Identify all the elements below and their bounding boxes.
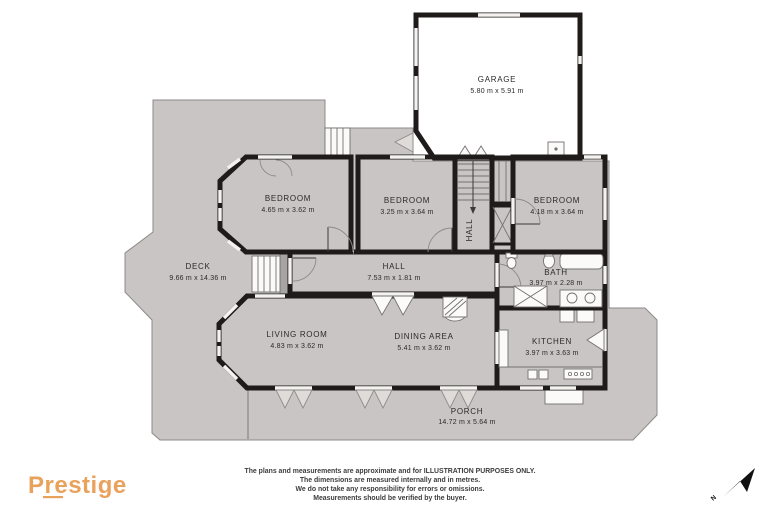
hall-label: HALL: [383, 262, 406, 271]
bedroom3-dims: 4.18 m x 3.64 m: [530, 209, 583, 216]
utility-box-icon: [548, 142, 564, 156]
footer: Prestige The plans and measurements are …: [28, 468, 755, 503]
toilet-icon: [506, 253, 517, 269]
bedroom2-dims: 3.25 m x 3.64 m: [380, 209, 433, 216]
north-label: N: [710, 494, 718, 503]
porch-step: [545, 390, 583, 404]
basin-icon: [544, 253, 555, 268]
bedroom3-label: BEDROOM: [534, 196, 580, 205]
hall-deck-steps-icon: [252, 254, 292, 294]
kitchen-label: KITCHEN: [532, 337, 572, 346]
hall-dims: 7.53 m x 1.81 m: [367, 275, 420, 282]
floor-plan: GARAGE 5.80 m x 5.91 m BEDROOM 4.65 m x …: [0, 0, 768, 512]
garage-label: GARAGE: [478, 75, 516, 84]
room-garage: [395, 15, 580, 158]
bathtub-icon: [560, 253, 603, 269]
living-label: LIVING ROOM: [266, 330, 327, 339]
disclaimer-line-3: We do not take any responsibility for er…: [295, 486, 484, 493]
deck-dims: 9.66 m x 14.36 m: [169, 275, 226, 282]
living-dims: 4.83 m x 3.62 m: [270, 343, 323, 350]
bedroom1-label: BEDROOM: [265, 194, 311, 203]
disclaimer-line-2: The dimensions are measured internally a…: [300, 477, 480, 484]
bath-label: BATH: [544, 268, 568, 277]
vanity-icon: [560, 290, 602, 307]
brand-logo: Prestige: [28, 472, 127, 499]
garage-steps-icon: [325, 128, 350, 158]
kitchen-dims: 3.97 m x 3.63 m: [525, 350, 578, 357]
deck-label: DECK: [185, 262, 210, 271]
shower-icon: [514, 286, 547, 307]
dining-dims: 5.41 m x 3.62 m: [397, 345, 450, 352]
garage-dims: 5.80 m x 5.91 m: [470, 88, 523, 95]
stove-icon: [564, 369, 592, 379]
porch-dims: 14.72 m x 5.64 m: [438, 419, 495, 426]
porch-label: PORCH: [451, 407, 483, 416]
dining-label: DINING AREA: [394, 332, 453, 341]
bath-dims: 3.97 m x 2.28 m: [529, 280, 582, 287]
north-arrow-icon: N: [710, 468, 755, 503]
bedroom2-label: BEDROOM: [384, 196, 430, 205]
fireplace-icon: [443, 297, 467, 321]
disclaimer-line-4: Measurements should be verified by the b…: [313, 495, 467, 502]
stairhall-label: HALL: [465, 219, 474, 242]
logo-underline: [43, 496, 63, 498]
bedroom1-dims: 4.65 m x 3.62 m: [261, 207, 314, 214]
disclaimer-line-1: The plans and measurements are approxima…: [244, 468, 535, 475]
